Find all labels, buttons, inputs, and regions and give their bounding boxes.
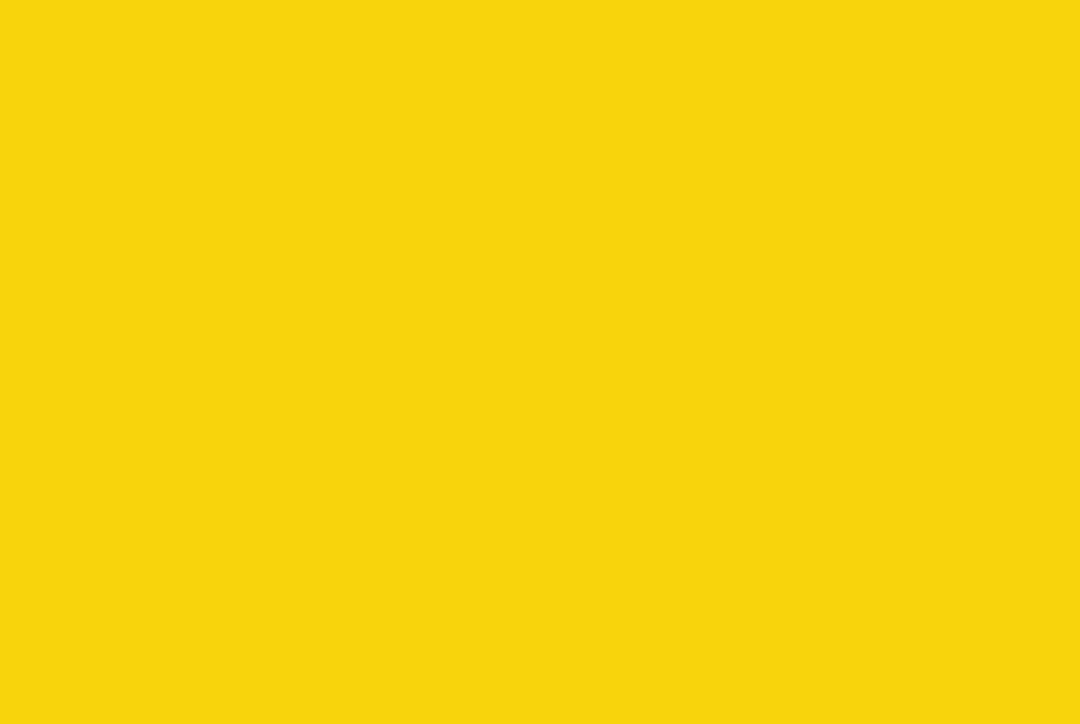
course-map-image[interactable] [48,58,1035,592]
page: { "page": { "background_color": "#F5D409… [0,0,1080,724]
marathon-course-map [48,58,1035,592]
